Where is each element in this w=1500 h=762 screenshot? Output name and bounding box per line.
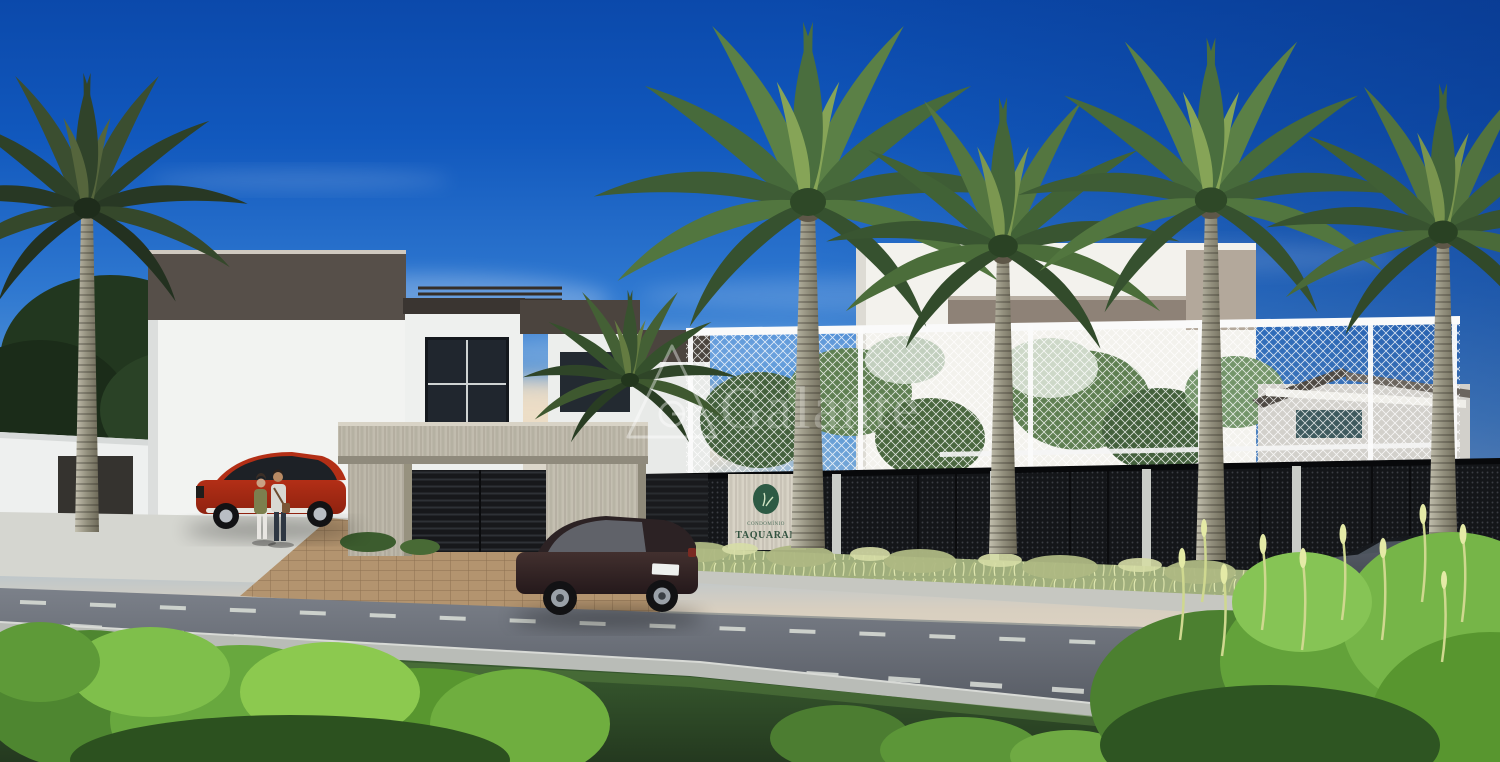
dark-upper-volume (148, 254, 406, 320)
architectural-rendering: CONDOMÍNIO TAQUARAL (0, 0, 1500, 762)
sign-line1: CONDOMÍNIO (747, 521, 785, 527)
hedge (340, 532, 396, 552)
scene-canvas: CONDOMÍNIO TAQUARAL (0, 0, 1500, 762)
license-plate (652, 563, 680, 575)
green-oval-leaf-emblem-icon (753, 484, 779, 514)
sign-line2: TAQUARAL (735, 530, 796, 541)
woman-figure (254, 489, 267, 514)
watermark-brand: Galante (720, 375, 921, 441)
